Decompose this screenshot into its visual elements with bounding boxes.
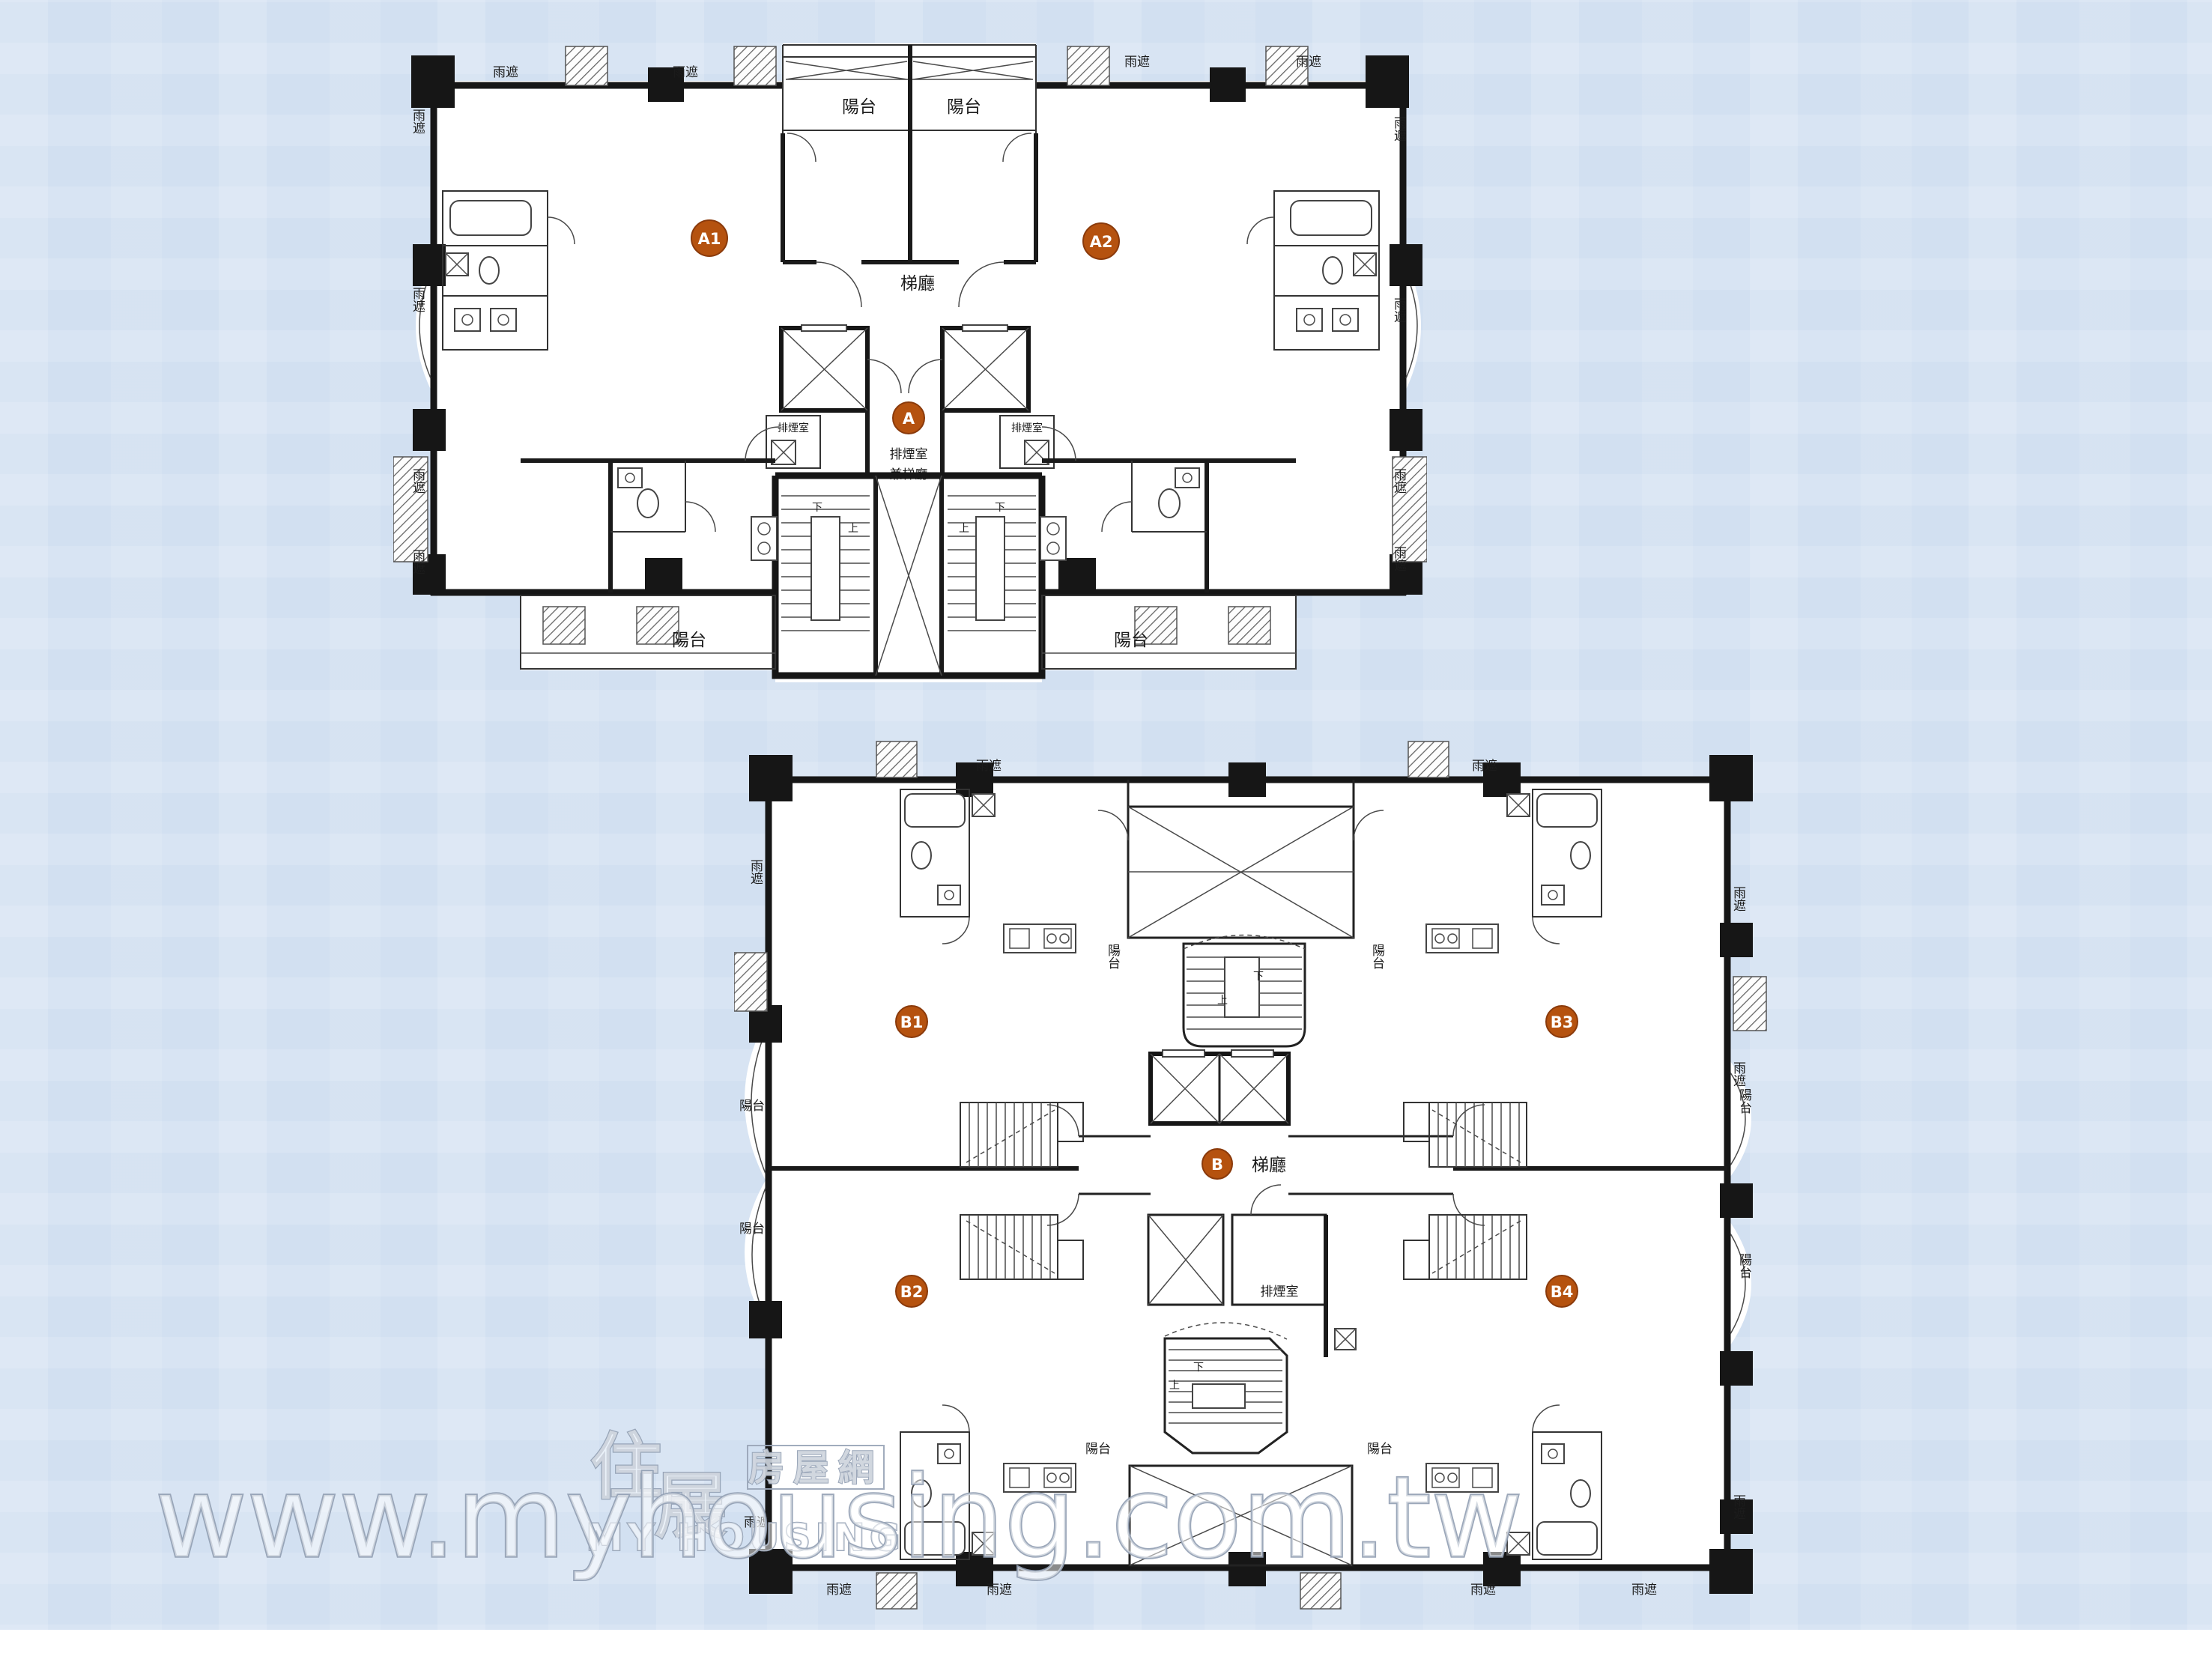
balcony-label: 陽台 [1105, 944, 1120, 969]
toilet-icon [1571, 842, 1590, 869]
rain-cover-label: 雨遮 [1730, 886, 1746, 912]
balcony-label: 陽台 [1736, 1088, 1751, 1114]
toilet-icon [912, 1480, 931, 1507]
svg-text:A2: A2 [1090, 233, 1113, 251]
svg-text:排煙室: 排煙室 [778, 422, 809, 434]
down-label: 下 [812, 502, 822, 514]
down-label: 下 [995, 502, 1005, 514]
svg-text:B2: B2 [900, 1283, 924, 1301]
up-label: 上 [959, 523, 969, 535]
rain-cover-label: 雨遮 [976, 759, 1002, 774]
plan-a-floor [416, 43, 1421, 682]
balcony-label: 陽台 [1085, 1442, 1111, 1457]
svg-text:B4: B4 [1551, 1283, 1574, 1301]
rain-cover-label: 雨遮 [1730, 1494, 1746, 1520]
sink-icon [938, 885, 960, 905]
svg-text:B1: B1 [900, 1013, 924, 1031]
up-label: 上 [1169, 1380, 1180, 1392]
unit-badge-a1: A1 [691, 220, 727, 256]
kitchen-counter [1426, 1464, 1498, 1492]
rain-cover-label: 雨遮 [744, 1515, 769, 1530]
toilet-icon [479, 257, 499, 284]
sink-icon [1297, 309, 1322, 331]
rain-cover-label: 雨遮 [826, 1583, 852, 1598]
toilet-icon [637, 489, 658, 518]
sink-icon [1542, 885, 1564, 905]
rain-cover-label: 雨遮 [410, 549, 425, 574]
down-label: 下 [1193, 1362, 1204, 1374]
rain-cover-label: 雨遮 [1730, 1061, 1746, 1087]
elevator-icon [1151, 1050, 1288, 1123]
floor-plan-a: 陽台 陽台 梯廳 A 排煙室 兼梯廳 排煙室 [393, 37, 1427, 689]
balcony-label: 陽台 [672, 631, 706, 650]
rain-cover-label: 雨遮 [410, 109, 425, 134]
kitchen-counter [1004, 924, 1076, 953]
unit-badge-a2: A2 [1083, 223, 1119, 259]
toilet-icon [1159, 489, 1180, 518]
rain-cover-label: 雨遮 [1391, 468, 1407, 494]
sink-icon [938, 1444, 960, 1464]
rain-cover-label: 雨遮 [410, 468, 425, 494]
smoke-lobby-label-line1: 排煙室 [890, 447, 928, 462]
sink-icon [1175, 468, 1199, 488]
bathtub-icon [1537, 1522, 1597, 1555]
rain-cover-label: 雨遮 [1472, 759, 1497, 774]
rain-cover-label: 雨遮 [987, 1583, 1012, 1598]
bathtub-icon [1291, 201, 1372, 235]
balcony-label: 陽台 [1114, 631, 1148, 650]
sink-icon [1542, 1444, 1564, 1464]
unit-badge-b1: B1 [896, 1006, 927, 1037]
bathtub-icon [905, 794, 965, 827]
lift-lobby-label: 梯廳 [900, 274, 935, 294]
unit-badge-b2: B2 [896, 1276, 927, 1307]
svg-text:B: B [1211, 1156, 1223, 1174]
rain-cover-label: 雨遮 [1124, 55, 1150, 70]
up-label: 上 [1217, 995, 1228, 1007]
floorplan-page: 陽台 陽台 梯廳 A 排煙室 兼梯廳 排煙室 [0, 0, 2212, 1656]
svg-text:B3: B3 [1551, 1013, 1574, 1031]
rain-cover-label: 雨遮 [1391, 116, 1407, 142]
unit-badge-b: B [1202, 1149, 1232, 1179]
toilet-icon [1571, 1480, 1590, 1507]
sink-icon [618, 468, 642, 488]
sink-icon [491, 309, 516, 331]
rain-cover-label: 雨遮 [748, 859, 763, 885]
svg-text:排煙室: 排煙室 [1261, 1285, 1299, 1299]
rain-cover-label: 雨遮 [1470, 1583, 1496, 1598]
down-label: 下 [1253, 971, 1264, 983]
kitchen-counter [1426, 924, 1498, 953]
svg-text:A: A [903, 410, 915, 428]
watermark-logo-char2: 展 [655, 1464, 727, 1548]
unit-badge-b3: B3 [1546, 1006, 1578, 1037]
rain-cover-label: 雨遮 [1296, 55, 1321, 70]
rain-cover-label: 雨遮 [673, 65, 698, 80]
unit-badge-a: A [893, 402, 924, 434]
balcony-label: 陽台 [739, 1099, 765, 1114]
balcony-label: 陽台 [1736, 1253, 1751, 1279]
balcony-label: 陽台 [739, 1222, 765, 1237]
balcony-label: 陽台 [1367, 1442, 1393, 1457]
balcony-label: 陽台 [947, 97, 981, 117]
bathtub-icon [905, 1522, 965, 1555]
sink-icon [1333, 309, 1358, 331]
rain-cover-label: 雨遮 [410, 287, 425, 312]
balcony-label: 陽台 [842, 97, 876, 117]
toilet-icon [1323, 257, 1342, 284]
balcony-label: 陽台 [1369, 944, 1384, 969]
bathtub-icon [450, 201, 531, 235]
floor-plan-b: 下 上 陽台 陽台 B 梯廳 排煙室 [734, 736, 1768, 1616]
lift-lobby-label: 梯廳 [1252, 1156, 1286, 1175]
rain-cover-label: 雨遮 [493, 65, 518, 80]
rain-cover-label: 雨遮 [1631, 1583, 1657, 1598]
rain-cover-label: 雨遮 [1391, 297, 1407, 323]
svg-text:A1: A1 [698, 230, 721, 248]
plan-b-floor [745, 777, 1751, 1571]
sink-icon [455, 309, 480, 331]
elevator-icon [942, 325, 1028, 410]
up-label: 上 [848, 523, 858, 535]
rain-cover-label: 雨遮 [1391, 546, 1407, 571]
toilet-icon [912, 842, 931, 869]
bottom-margin-strip [0, 1630, 2212, 1656]
elevator-icon [781, 325, 867, 410]
watermark-logo-char1: 住 [590, 1425, 662, 1509]
unit-badge-b4: B4 [1546, 1276, 1578, 1307]
bathtub-icon [1537, 794, 1597, 827]
svg-text:排煙室: 排煙室 [1011, 422, 1043, 434]
kitchen-counter [1004, 1464, 1076, 1492]
